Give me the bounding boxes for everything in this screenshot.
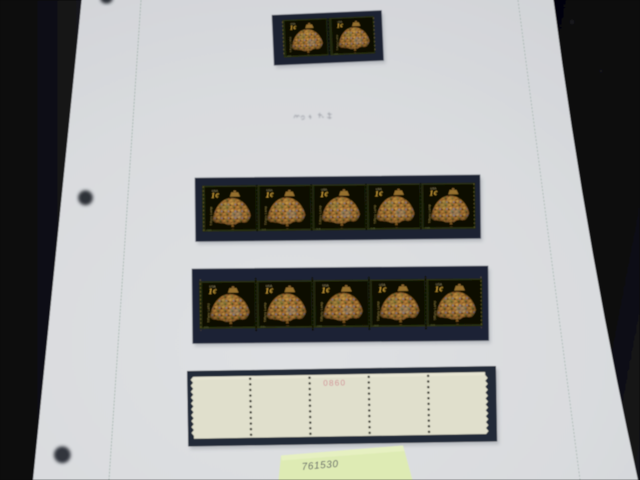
svg-text:0860: 0860 (323, 378, 346, 387)
